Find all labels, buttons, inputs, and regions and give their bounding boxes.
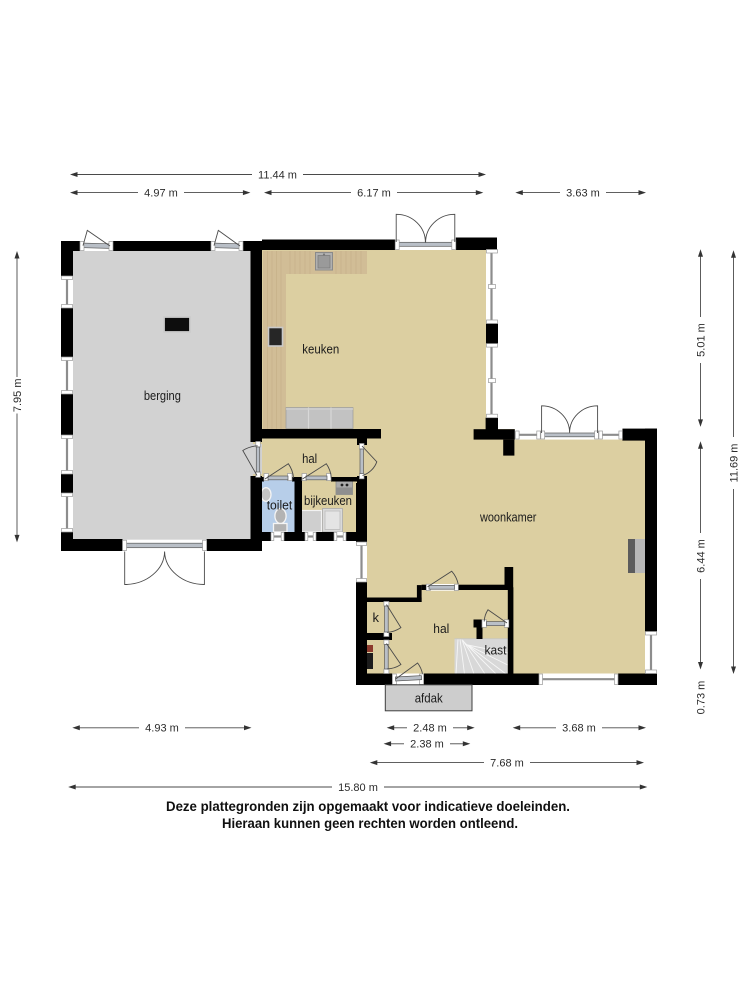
svg-text:4.93 m: 4.93 m	[145, 723, 179, 735]
svg-text:woonkamer: woonkamer	[479, 510, 537, 525]
svg-text:hal: hal	[302, 451, 317, 466]
svg-text:11.44 m: 11.44 m	[258, 169, 297, 181]
svg-text:kast: kast	[485, 643, 507, 658]
svg-text:6.44 m: 6.44 m	[695, 539, 707, 573]
svg-text:keuken: keuken	[302, 342, 339, 357]
svg-text:Hieraan kunnen geen rechten wo: Hieraan kunnen geen rechten worden ontle…	[222, 816, 518, 831]
svg-text:2.38 m: 2.38 m	[410, 739, 444, 751]
svg-text:afdak: afdak	[415, 691, 443, 706]
svg-text:5.01 m: 5.01 m	[695, 323, 707, 357]
svg-text:Deze plattegronden zijn opgema: Deze plattegronden zijn opgemaakt voor i…	[166, 799, 570, 814]
svg-text:4.97 m: 4.97 m	[144, 187, 178, 199]
svg-text:toilet: toilet	[267, 498, 293, 513]
svg-text:2.48 m: 2.48 m	[413, 723, 447, 735]
svg-text:0.73 m: 0.73 m	[695, 681, 707, 715]
svg-text:hal: hal	[433, 621, 449, 636]
svg-text:3.63 m: 3.63 m	[566, 187, 600, 199]
svg-text:11.69 m: 11.69 m	[728, 444, 740, 483]
svg-text:15.80 m: 15.80 m	[338, 782, 378, 794]
svg-text:3.68 m: 3.68 m	[562, 723, 596, 735]
svg-text:k: k	[373, 610, 380, 625]
svg-text:7.95 m: 7.95 m	[12, 378, 24, 412]
svg-text:6.17 m: 6.17 m	[357, 187, 391, 199]
svg-text:berging: berging	[144, 388, 181, 403]
svg-text:bijkeuken: bijkeuken	[304, 493, 352, 508]
svg-text:7.68 m: 7.68 m	[490, 757, 524, 769]
